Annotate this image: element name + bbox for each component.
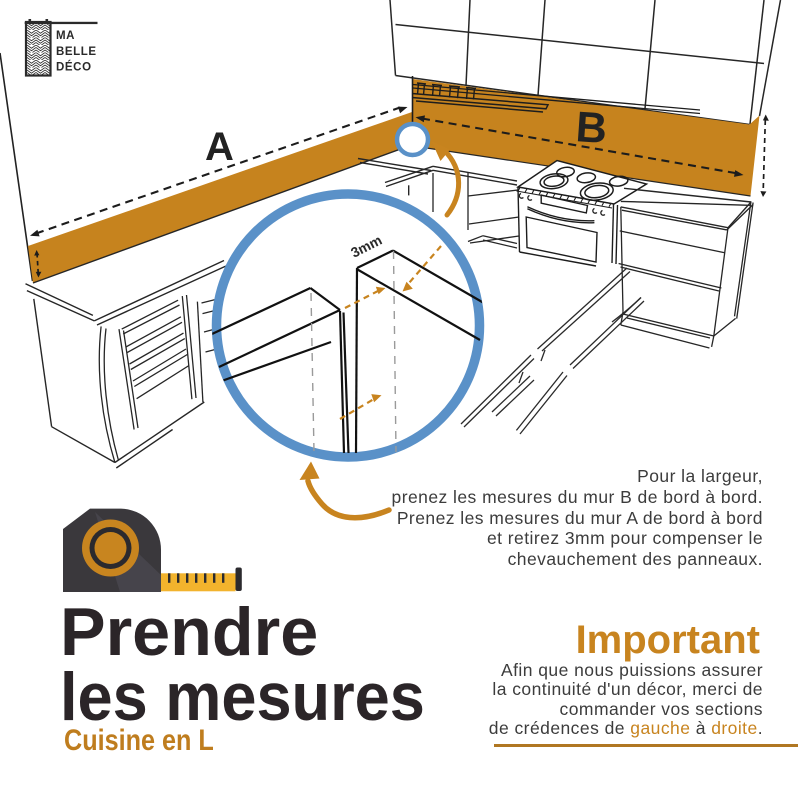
svg-text:A: A xyxy=(205,125,234,169)
svg-text:DÉCO: DÉCO xyxy=(56,60,92,73)
svg-text:MA: MA xyxy=(56,30,75,42)
svg-text:B: B xyxy=(574,103,608,153)
svg-text:BELLE: BELLE xyxy=(56,46,97,58)
